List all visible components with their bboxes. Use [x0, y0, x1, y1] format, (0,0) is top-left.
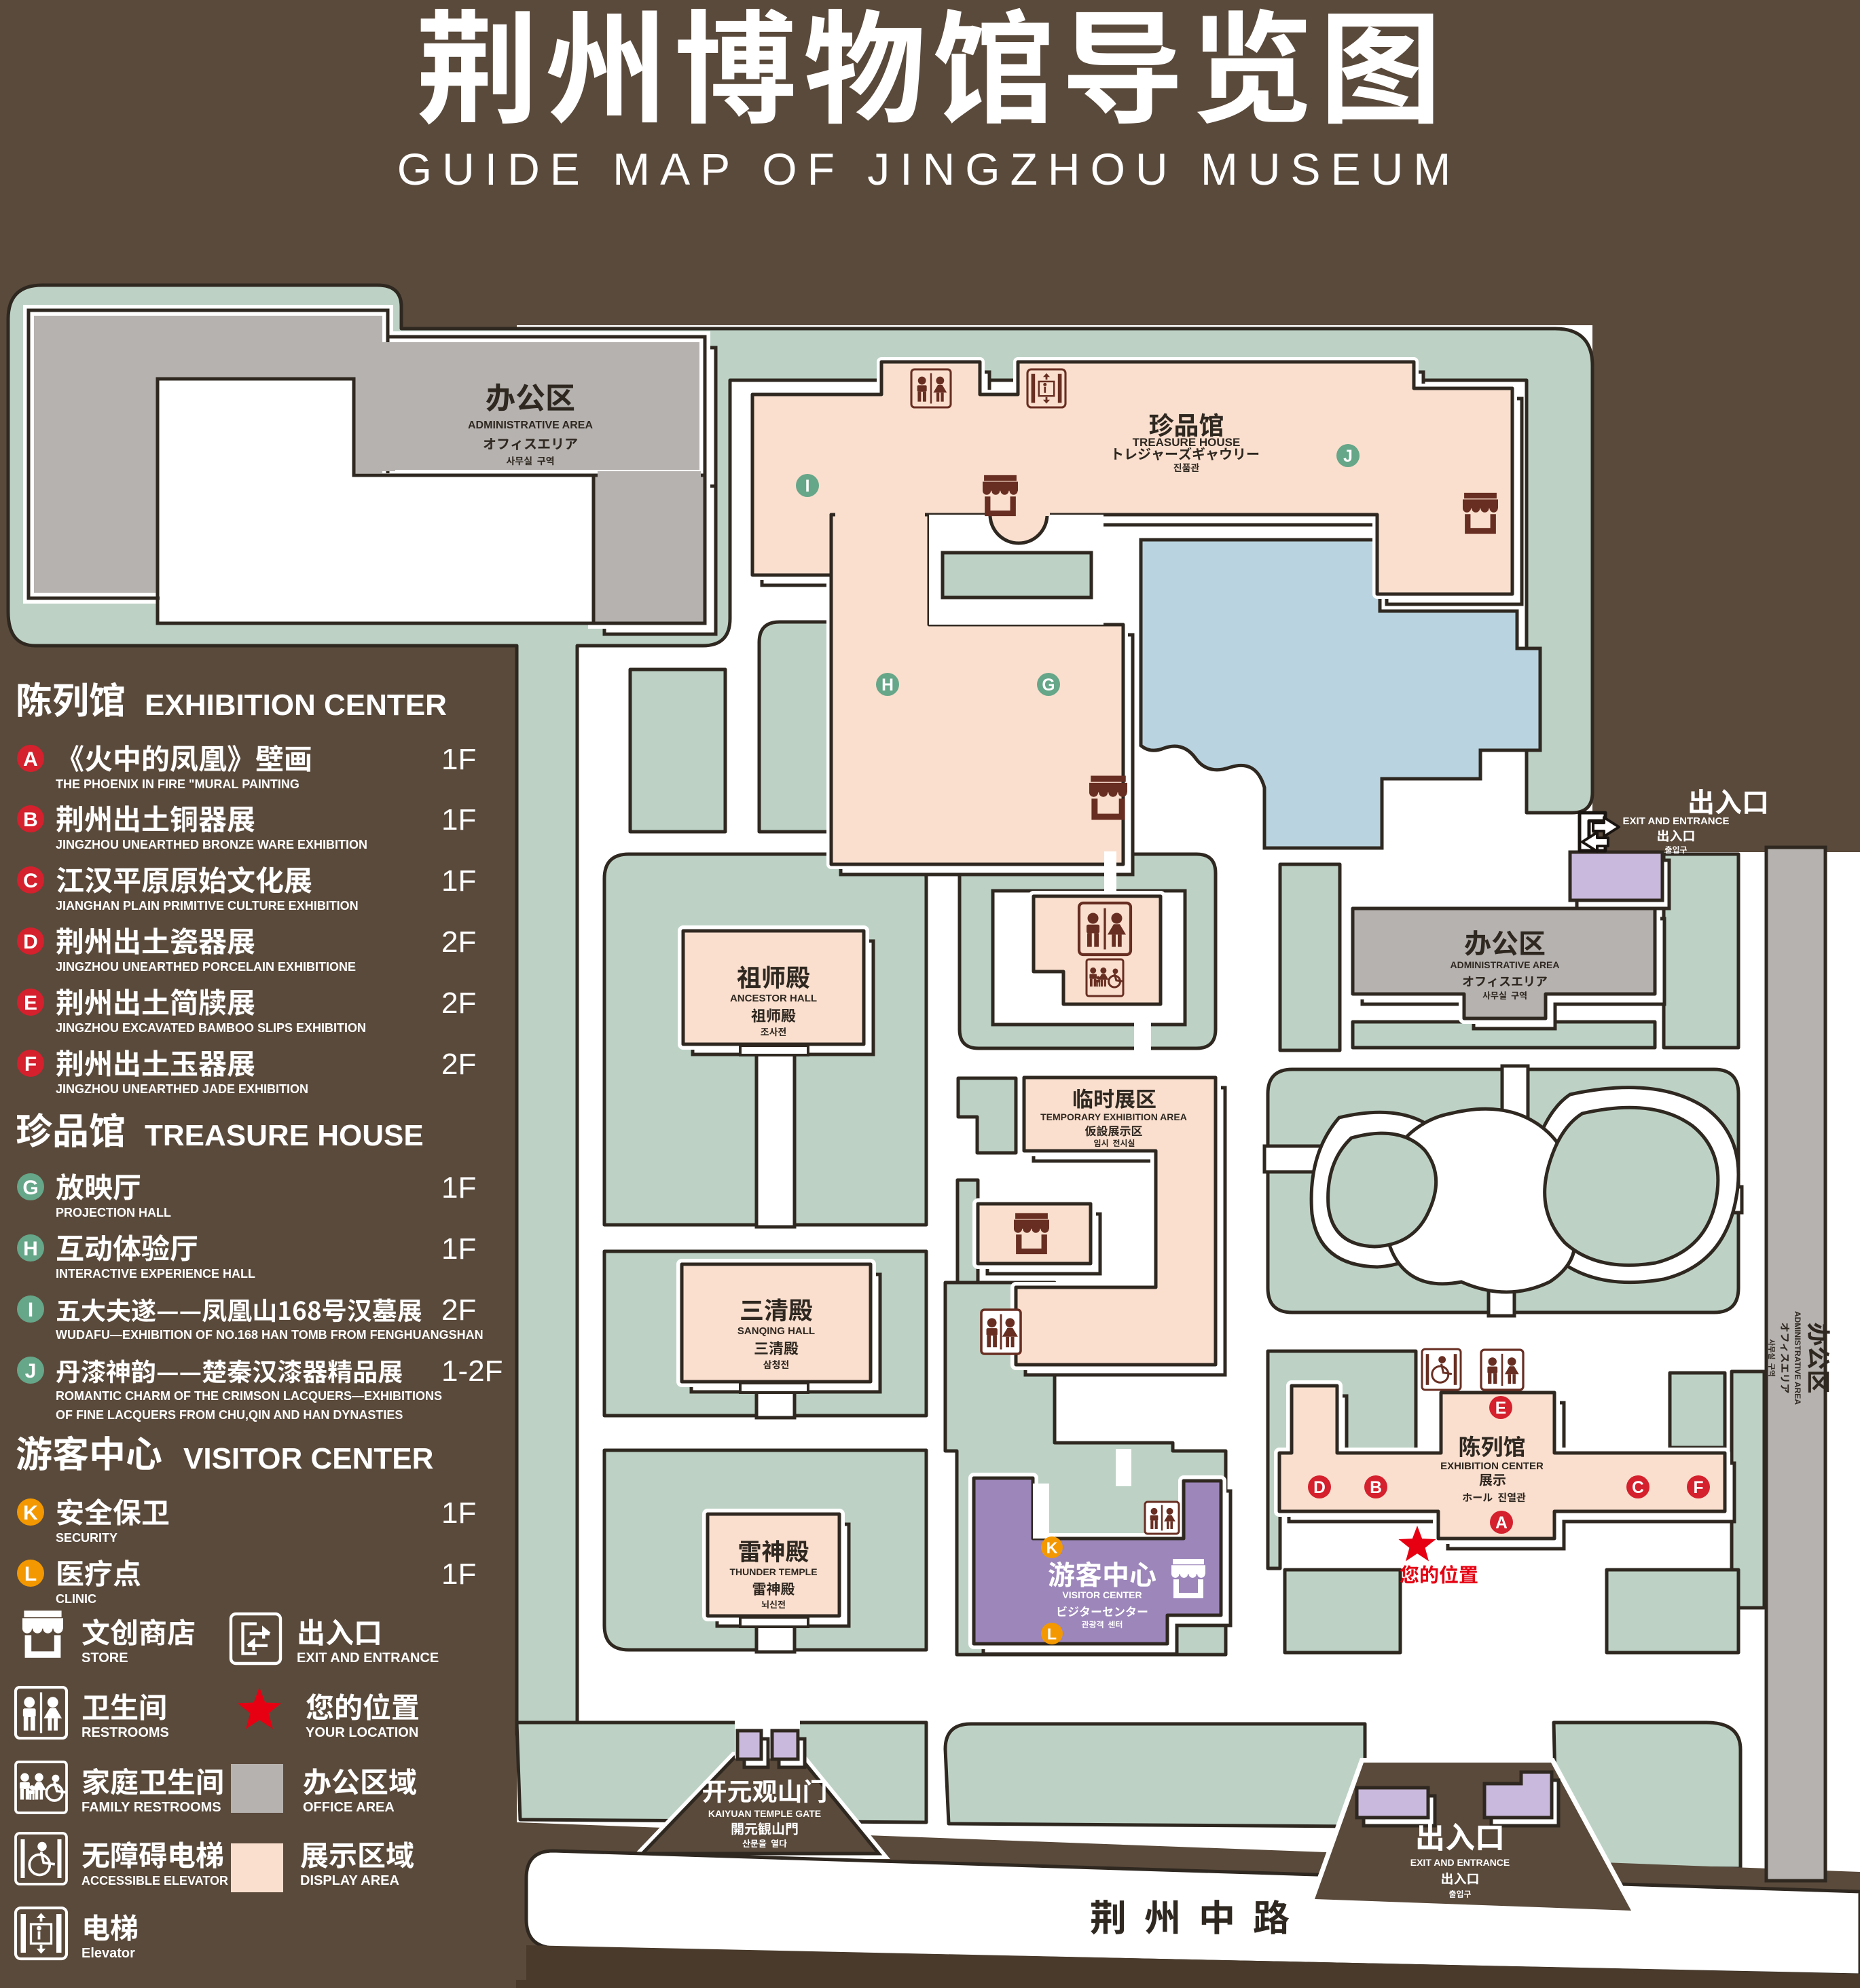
svg-text:DISPLAY AREA: DISPLAY AREA [300, 1873, 399, 1888]
svg-text:JINGZHOU EXCAVATED BAMBOO SLIP: JINGZHOU EXCAVATED BAMBOO SLIPS EXHIBITI… [56, 1021, 366, 1035]
svg-text:J: J [25, 1360, 37, 1382]
svg-text:ROMANTIC CHARM OF THE CRIMSON: ROMANTIC CHARM OF THE CRIMSON LACQUERS—E… [56, 1389, 442, 1403]
svg-text:JIANGHAN PLAIN PRIMITIVE CULTU: JIANGHAN PLAIN PRIMITIVE CULTURE EXHIBIT… [56, 899, 359, 913]
svg-text:E: E [1495, 1399, 1506, 1418]
svg-text:2F: 2F [441, 1293, 476, 1327]
svg-text:EXHIBITION CENTER: EXHIBITION CENTER [1440, 1460, 1544, 1472]
svg-text:J: J [1343, 447, 1353, 466]
svg-text:2F: 2F [441, 925, 476, 959]
svg-text:YOUR LOCATION: YOUR LOCATION [306, 1725, 418, 1740]
svg-text:THE PHOENIX IN FIRE "MURAL PAI: THE PHOENIX IN FIRE "MURAL PAINTING [56, 777, 299, 791]
svg-text:SANQING HALL: SANQING HALL [737, 1325, 815, 1337]
svg-text:TREASURE HOUSE: TREASURE HOUSE [145, 1119, 424, 1152]
svg-text:F: F [1693, 1479, 1703, 1497]
svg-text:A: A [23, 748, 38, 771]
svg-text:CLINIC: CLINIC [56, 1592, 96, 1606]
svg-text:B: B [23, 809, 38, 831]
svg-text:VISITOR CENTER: VISITOR CENTER [183, 1442, 433, 1475]
svg-text:TREASURE HOUSE: TREASURE HOUSE [1133, 436, 1241, 449]
svg-text:EXIT AND ENTRANCE: EXIT AND ENTRANCE [297, 1651, 439, 1665]
svg-text:A: A [1495, 1514, 1508, 1532]
svg-text:ANCESTOR HALL: ANCESTOR HALL [730, 993, 817, 1004]
svg-text:TEMPORARY EXHIBITION AREA: TEMPORARY EXHIBITION AREA [1040, 1111, 1187, 1122]
svg-text:C: C [1632, 1479, 1644, 1497]
svg-text:K: K [1046, 1539, 1058, 1556]
svg-text:L: L [24, 1563, 37, 1585]
svg-text:ACCESSIBLE ELEVATOR: ACCESSIBLE ELEVATOR [81, 1874, 228, 1888]
svg-text:EXIT AND ENTRANCE: EXIT AND ENTRANCE [1623, 815, 1730, 827]
svg-text:C: C [23, 870, 38, 892]
svg-text:RESTROOMS: RESTROOMS [81, 1725, 169, 1740]
svg-text:INTERACTIVE EXPERIENCE HALL: INTERACTIVE EXPERIENCE HALL [56, 1267, 255, 1281]
svg-text:G: G [1042, 676, 1055, 695]
svg-text:1F: 1F [441, 1171, 476, 1204]
svg-text:FAMILY RESTROOMS: FAMILY RESTROOMS [81, 1800, 221, 1815]
svg-text:H: H [23, 1238, 38, 1260]
svg-text:D: D [1313, 1479, 1326, 1497]
svg-text:VISITOR CENTER: VISITOR CENTER [1062, 1589, 1142, 1600]
svg-text:B: B [1370, 1479, 1382, 1497]
svg-text:STORE: STORE [81, 1651, 128, 1665]
svg-text:1F: 1F [441, 864, 476, 898]
svg-text:1F: 1F [441, 743, 476, 776]
svg-text:EXHIBITION CENTER: EXHIBITION CENTER [145, 688, 447, 722]
svg-text:K: K [23, 1502, 38, 1524]
svg-text:JINGZHOU UNEARTHED JADE EXHIBI: JINGZHOU UNEARTHED JADE EXHIBITION [56, 1082, 308, 1096]
svg-text:G: G [22, 1177, 38, 1199]
svg-text:1F: 1F [441, 803, 476, 836]
svg-text:KAIYUAN TEMPLE GATE: KAIYUAN TEMPLE GATE [708, 1808, 821, 1819]
svg-text:1F: 1F [441, 1496, 476, 1530]
svg-text:1-2F: 1-2F [441, 1355, 503, 1388]
svg-text:SECURITY: SECURITY [56, 1531, 117, 1545]
svg-text:H: H [881, 676, 894, 695]
svg-text:ADMINISTRATIVE AREA: ADMINISTRATIVE AREA [1451, 959, 1560, 970]
svg-text:OF FINE LACQUERS FROM CHU,QIN: OF FINE LACQUERS FROM CHU,QIN AND HAN DY… [56, 1408, 403, 1422]
svg-text:JINGZHOU UNEARTHED BRONZE WARE: JINGZHOU UNEARTHED BRONZE WARE EXHIBITIO… [56, 838, 367, 851]
svg-text:EXIT AND ENTRANCE: EXIT AND ENTRANCE [1410, 1857, 1510, 1868]
svg-text:Elevator: Elevator [81, 1946, 135, 1961]
svg-text:GUIDE MAP OF JINGZHOU MUSEUM: GUIDE MAP OF JINGZHOU MUSEUM [397, 144, 1461, 194]
svg-text:OFFICE AREA: OFFICE AREA [303, 1800, 395, 1815]
svg-text:JINGZHOU UNEARTHED PORCELAIN E: JINGZHOU UNEARTHED PORCELAIN EXHIBITIONE [56, 960, 356, 974]
svg-text:F: F [24, 1053, 37, 1075]
svg-text:WUDAFU—EXHIBITION OF NO.168 HA: WUDAFU—EXHIBITION OF NO.168 HAN TOMB FRO… [56, 1328, 484, 1342]
svg-text:2F: 2F [441, 987, 476, 1020]
svg-text:I: I [805, 477, 810, 496]
svg-text:PROJECTION HALL: PROJECTION HALL [56, 1206, 171, 1219]
svg-text:1F: 1F [441, 1558, 476, 1591]
svg-text:ADMINISTRATIVE AREA: ADMINISTRATIVE AREA [468, 420, 593, 431]
svg-text:ADMINISTRATIVE AREA: ADMINISTRATIVE AREA [1793, 1311, 1802, 1405]
svg-text:1F: 1F [441, 1232, 476, 1266]
svg-text:E: E [24, 992, 37, 1014]
svg-text:L: L [1047, 1625, 1057, 1642]
svg-text:2F: 2F [441, 1048, 476, 1081]
svg-text:D: D [23, 931, 38, 953]
svg-text:THUNDER TEMPLE: THUNDER TEMPLE [729, 1566, 817, 1577]
svg-text:I: I [28, 1299, 33, 1321]
